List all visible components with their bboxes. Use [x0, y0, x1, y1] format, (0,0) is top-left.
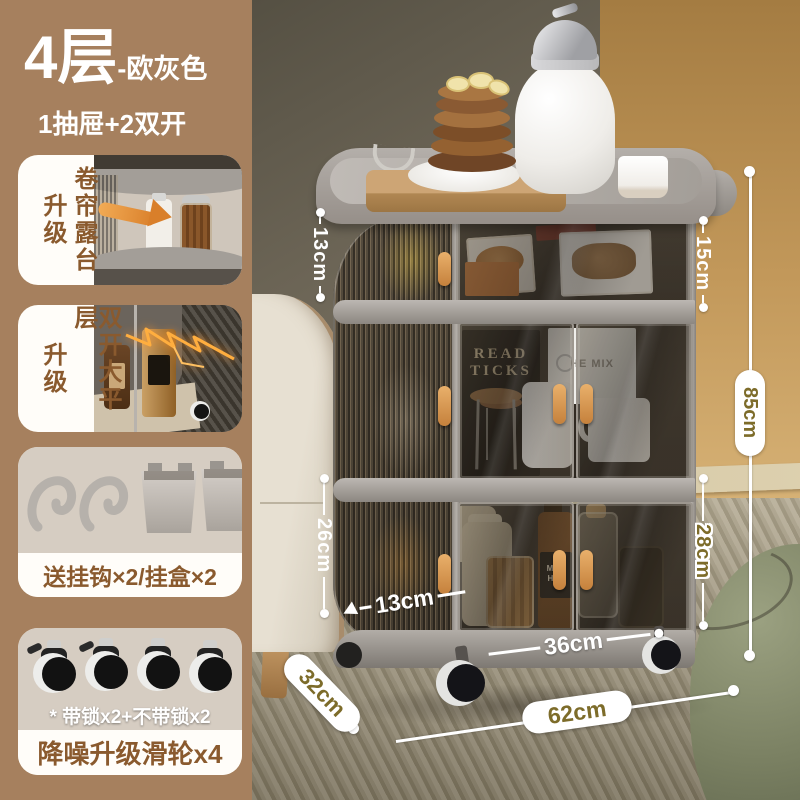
middle-door-right [576, 322, 693, 480]
dimension-label-28cm: 28cm [693, 524, 713, 579]
mini-caster-tire [194, 404, 209, 419]
product-title: 4层 -欧灰色 [24, 26, 207, 89]
lightning-effect [120, 311, 240, 381]
feature-label-roller: 卷帘露台 [71, 166, 95, 274]
dimension-label-13cm-top: 13cm [310, 227, 330, 282]
feature-image-casters: * 带锁x2+不带锁x2 [18, 628, 242, 732]
feature-card-double-door: 升级 双开大平层 [18, 305, 242, 432]
banana-slice [446, 76, 470, 92]
dimension-drawer: 15cm [688, 216, 718, 312]
dimension-total-height: 85cm [735, 370, 765, 456]
dimension-dot [744, 650, 755, 661]
side-panel-handle-middle [438, 386, 451, 426]
feature-label-upgrade: 升级 [40, 342, 64, 396]
bottom-door-right-handle [580, 550, 593, 590]
feature-label-flat-tier: 双开大平层 [71, 305, 119, 432]
feature-label: 升级 卷帘露台 [40, 155, 95, 285]
feature-label: 升级 双开大平层 [40, 305, 119, 432]
hanging-bin [200, 469, 242, 531]
caster-front-left-tire [447, 664, 485, 702]
dimension-dot [744, 166, 755, 177]
product-subtitle: 1抽屉+2双开 [38, 104, 186, 141]
caster-icon [136, 638, 180, 694]
product-detail-image: READ TICKS HE MIX MON HOL [0, 0, 800, 800]
kettle-body [515, 62, 615, 194]
feature-card-roller-shelf: 升级 卷帘露台 [18, 155, 242, 285]
feature-label-upgrade: 升级 [40, 193, 64, 247]
side-panel-handle-top [438, 252, 451, 286]
middle-door-right-handle [580, 384, 593, 424]
drawer-front-glass [456, 220, 692, 304]
dimension-label-62cm: 62cm [546, 697, 607, 728]
caster-lock-note: * 带锁x2+不带锁x2 [18, 702, 242, 729]
dimension-label-26cm: 26cm [314, 518, 334, 573]
dimension-label-15cm: 15cm [693, 236, 713, 291]
feature-card-hooks: 送挂钩×2/挂盒×2 [18, 447, 242, 597]
caster-back-left [336, 642, 362, 668]
dimension-dot [728, 685, 739, 696]
caster-icon [188, 640, 232, 696]
title-tier-count: 4层 [24, 26, 117, 89]
feature-card-casters: * 带锁x2+不带锁x2 降噪升级滑轮x4 [18, 628, 242, 775]
dimension-top-tier: 13cm [305, 208, 335, 302]
shelf-dark-bottom [94, 269, 242, 285]
title-color-name: -欧灰色 [117, 47, 207, 86]
bottom-door-left-handle [553, 550, 566, 590]
hook-icons [24, 461, 144, 547]
feature-image-hooks [18, 447, 242, 555]
cart-shelf-band-1 [333, 300, 695, 324]
dimension-middle-tier: 26cm [309, 474, 339, 618]
caster-icon-locking [32, 640, 76, 696]
dimension-label-85cm: 85cm [740, 387, 760, 438]
casters-caption: 降噪升级滑轮x4 [18, 730, 242, 775]
cart-shelf-band-2 [333, 478, 695, 502]
caster-icon-locking [84, 638, 128, 694]
middle-door-left-handle [553, 384, 566, 424]
small-cup [618, 156, 668, 198]
feature-image-roller [94, 155, 242, 285]
hooks-caption: 送挂钩×2/挂盒×2 [18, 553, 242, 597]
hanging-bin [140, 471, 198, 533]
bottom-door-right [576, 502, 693, 632]
dimension-bottom-tier: 28cm [688, 474, 718, 630]
